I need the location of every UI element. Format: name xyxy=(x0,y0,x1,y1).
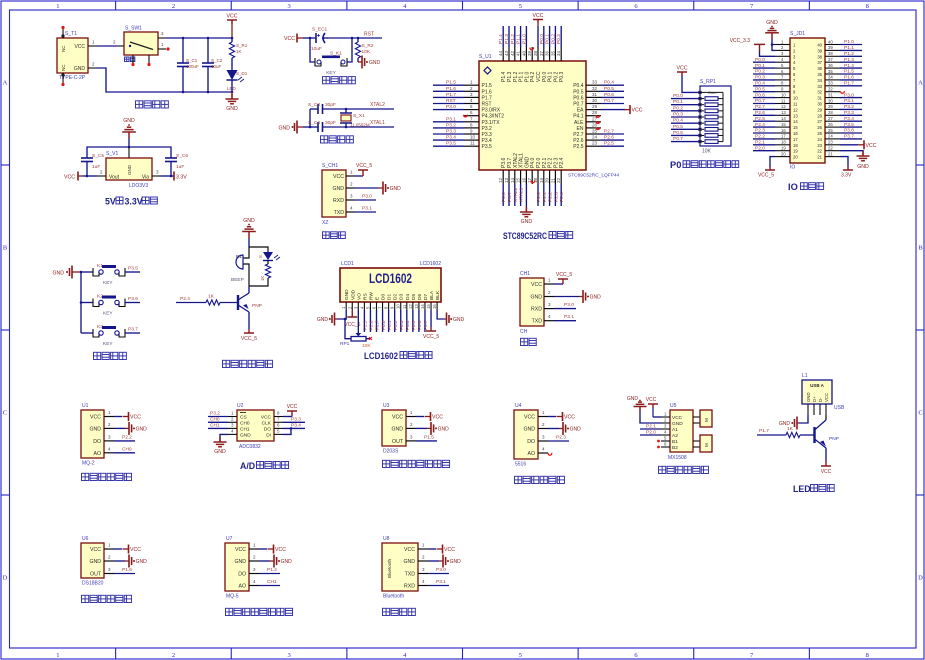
svg-text:P0.4: P0.4 xyxy=(604,80,614,86)
svg-text:GND: GND xyxy=(627,396,639,402)
svg-text:GND: GND xyxy=(234,559,246,565)
svg-text:1: 1 xyxy=(664,412,667,417)
svg-text:10uF: 10uF xyxy=(211,64,222,69)
svg-text:CH0: CH0 xyxy=(122,446,132,452)
svg-text:15: 15 xyxy=(426,304,431,309)
svg-text:P1.3: P1.3 xyxy=(844,57,854,63)
svg-text:D2: D2 xyxy=(393,294,399,300)
svg-text:30: 30 xyxy=(592,98,598,103)
svg-text:28: 28 xyxy=(592,110,598,115)
svg-text:38: 38 xyxy=(817,54,822,59)
svg-text:5: 5 xyxy=(781,63,784,68)
svg-text:P1.7: P1.7 xyxy=(844,81,854,87)
svg-text:21: 21 xyxy=(550,177,555,183)
svg-text:Via: Via xyxy=(142,175,149,181)
svg-text:33: 33 xyxy=(592,80,598,85)
svg-text:14: 14 xyxy=(510,177,515,183)
svg-text:LCD1602: LCD1602 xyxy=(420,261,441,267)
svg-text:6: 6 xyxy=(277,423,280,428)
svg-text:S_X1: S_X1 xyxy=(353,113,365,119)
svg-text:8: 8 xyxy=(384,306,389,309)
svg-text:P0.0: P0.0 xyxy=(673,93,683,99)
svg-text:VCC: VCC xyxy=(90,547,101,553)
svg-text:GND: GND xyxy=(123,118,135,124)
svg-text:2: 2 xyxy=(172,652,175,659)
svg-text:P0.4: P0.4 xyxy=(573,83,584,89)
svg-text:GND: GND xyxy=(521,219,533,225)
svg-text:P0.3: P0.3 xyxy=(673,112,683,118)
svg-text:A: A xyxy=(3,80,8,87)
svg-text:5V: 5V xyxy=(105,197,116,207)
svg-text:7: 7 xyxy=(378,306,383,309)
svg-text:10uF: 10uF xyxy=(311,46,322,52)
svg-text:OUT: OUT xyxy=(392,439,404,445)
svg-text:8: 8 xyxy=(866,652,869,659)
svg-text:D5: D5 xyxy=(411,294,417,300)
svg-text:P3.3: P3.3 xyxy=(482,132,493,138)
svg-text:BLA: BLA xyxy=(429,290,435,300)
svg-text:1: 1 xyxy=(253,543,256,548)
svg-text:4: 4 xyxy=(470,98,473,103)
svg-text:2: 2 xyxy=(664,418,667,423)
svg-text:U5: U5 xyxy=(670,403,677,409)
svg-text:16: 16 xyxy=(521,177,526,183)
svg-text:VO: VO xyxy=(356,293,362,300)
svg-text:1: 1 xyxy=(470,80,473,85)
svg-text:P3.5: P3.5 xyxy=(446,141,456,147)
svg-text:RXD: RXD xyxy=(404,584,415,590)
svg-text:P1.5: P1.5 xyxy=(424,434,434,440)
svg-text:P1.6: P1.6 xyxy=(446,86,456,92)
svg-text:P0.0: P0.0 xyxy=(381,320,386,330)
svg-text:P0.3: P0.3 xyxy=(399,320,404,330)
svg-text:28: 28 xyxy=(828,110,833,115)
svg-text:37: 37 xyxy=(817,60,822,65)
svg-text:RXD: RXD xyxy=(531,307,542,313)
svg-text:1K: 1K xyxy=(236,49,242,54)
svg-text:P3.6: P3.6 xyxy=(501,192,507,202)
svg-text:19: 19 xyxy=(793,149,798,154)
svg-text:GND: GND xyxy=(438,426,450,432)
svg-text:1: 1 xyxy=(548,278,551,283)
svg-text:P0.2: P0.2 xyxy=(755,69,765,75)
svg-text:12: 12 xyxy=(498,177,503,183)
svg-text:EA: EA xyxy=(577,108,584,114)
svg-text:P3.1/TX: P3.1/TX xyxy=(482,120,501,126)
svg-text:4: 4 xyxy=(253,579,256,584)
svg-text:DO: DO xyxy=(238,572,246,578)
svg-text:DO: DO xyxy=(527,439,535,445)
svg-text:4: 4 xyxy=(542,447,545,452)
svg-text:P2.2: P2.2 xyxy=(548,192,554,202)
svg-text:VCC: VCC xyxy=(404,547,415,553)
svg-text:30: 30 xyxy=(817,102,822,107)
svg-text:3: 3 xyxy=(353,306,358,309)
svg-text:8: 8 xyxy=(470,122,473,127)
svg-text:3: 3 xyxy=(542,435,545,440)
svg-text:VCC: VCC xyxy=(284,36,295,42)
svg-text:3: 3 xyxy=(410,434,413,439)
svg-text:1uF: 1uF xyxy=(176,164,184,170)
svg-text:P2.5: P2.5 xyxy=(755,116,765,122)
svg-text:VCC: VCC xyxy=(564,415,575,421)
svg-text:29: 29 xyxy=(828,104,833,109)
svg-text:P2.7: P2.7 xyxy=(604,129,614,135)
svg-text:A: A xyxy=(918,80,923,87)
svg-text:1: 1 xyxy=(542,410,545,415)
svg-text:VCC: VCC xyxy=(677,66,688,72)
svg-text:P2.4: P2.4 xyxy=(180,296,190,302)
svg-text:STC89C52RC: STC89C52RC xyxy=(503,231,547,241)
svg-text:19: 19 xyxy=(539,177,544,183)
svg-text:KEY: KEY xyxy=(326,70,336,76)
svg-text:P2.7: P2.7 xyxy=(573,132,584,138)
svg-text:P2.7: P2.7 xyxy=(755,104,765,110)
svg-text:CLK: CLK xyxy=(262,420,272,426)
svg-text:5516: 5516 xyxy=(515,462,526,468)
svg-text:P1.1: P1.1 xyxy=(516,34,522,44)
svg-text:39: 39 xyxy=(828,45,833,50)
svg-text:9: 9 xyxy=(390,306,395,309)
svg-text:22: 22 xyxy=(828,146,833,151)
svg-text:GND: GND xyxy=(74,66,86,72)
svg-text:P2.3: P2.3 xyxy=(755,128,765,134)
svg-text:25: 25 xyxy=(828,128,833,133)
svg-text:LED: LED xyxy=(793,484,811,494)
svg-text:VCC: VCC xyxy=(90,415,101,421)
svg-text:8: 8 xyxy=(781,81,784,86)
svg-text:P3.0: P3.0 xyxy=(564,302,574,308)
svg-text:3: 3 xyxy=(781,51,784,56)
svg-text:VCC_5: VCC_5 xyxy=(423,334,439,340)
svg-text:STC89C52RC_LQFP44: STC89C52RC_LQFP44 xyxy=(568,173,620,179)
svg-text:12: 12 xyxy=(408,304,413,309)
svg-text:35: 35 xyxy=(828,69,833,74)
svg-text:GND: GND xyxy=(89,559,101,565)
svg-text:P3.6: P3.6 xyxy=(128,296,138,302)
svg-text:P3.2: P3.2 xyxy=(446,122,456,128)
svg-text:5: 5 xyxy=(365,306,370,309)
svg-text:3: 3 xyxy=(287,3,290,10)
svg-text:39: 39 xyxy=(817,48,822,53)
svg-text:40: 40 xyxy=(817,43,822,48)
svg-text:20: 20 xyxy=(545,177,550,183)
svg-text:1: 1 xyxy=(422,543,425,548)
svg-text:CH1: CH1 xyxy=(240,426,250,432)
svg-text:P1.1: P1.1 xyxy=(844,45,854,51)
svg-text:7: 7 xyxy=(277,417,280,422)
svg-text:P3.6: P3.6 xyxy=(844,128,854,134)
svg-text:2: 2 xyxy=(548,290,551,295)
svg-text:GND: GND xyxy=(391,426,403,432)
svg-text:34: 34 xyxy=(817,78,822,83)
svg-text:13: 13 xyxy=(504,177,509,183)
svg-text:U2: U2 xyxy=(237,403,244,409)
svg-text:2: 2 xyxy=(108,555,111,560)
svg-text:PNP: PNP xyxy=(829,436,839,442)
svg-text:P1.7: P1.7 xyxy=(482,95,493,101)
svg-text:S_D1: S_D1 xyxy=(236,71,248,76)
svg-text:P1.4: P1.4 xyxy=(498,34,504,44)
svg-text:M: M xyxy=(704,418,709,422)
svg-text:3.3V: 3.3V xyxy=(125,197,143,207)
svg-text:CH1: CH1 xyxy=(520,271,530,277)
svg-text:D+: D+ xyxy=(812,396,817,402)
svg-text:1: 1 xyxy=(350,170,353,175)
svg-text:9: 9 xyxy=(470,129,473,134)
svg-text:5: 5 xyxy=(519,3,522,10)
svg-text:P0.6: P0.6 xyxy=(755,92,765,98)
svg-text:VCC: VCC xyxy=(261,415,272,421)
svg-text:2: 2 xyxy=(410,422,413,427)
svg-text:A1: A1 xyxy=(672,427,678,433)
svg-text:D-: D- xyxy=(818,397,823,402)
svg-text:P3.1: P3.1 xyxy=(436,579,446,585)
svg-text:RST: RST xyxy=(482,102,492,108)
svg-text:18: 18 xyxy=(781,140,786,145)
svg-text:1K: 1K xyxy=(208,294,215,300)
svg-text:S_U1: S_U1 xyxy=(479,54,492,60)
svg-text:44: 44 xyxy=(498,50,503,56)
svg-text:P3.0: P3.0 xyxy=(362,194,372,200)
svg-text:XTAL1: XTAL1 xyxy=(370,120,385,126)
svg-text:P1.0: P1.0 xyxy=(521,34,527,44)
svg-text:P3.0/RX: P3.0/RX xyxy=(482,108,501,114)
svg-text:30pF: 30pF xyxy=(325,120,336,126)
svg-text:10: 10 xyxy=(396,304,401,309)
svg-text:A/D: A/D xyxy=(240,461,255,471)
svg-text:1: 1 xyxy=(56,3,59,10)
svg-text:P2.5: P2.5 xyxy=(604,141,614,147)
svg-text:P0.6: P0.6 xyxy=(673,130,683,136)
svg-text:P2.5: P2.5 xyxy=(573,144,584,150)
svg-text:LCD1602: LCD1602 xyxy=(369,271,412,286)
svg-text:VCC: VCC xyxy=(824,393,829,402)
svg-text:AO: AO xyxy=(239,584,247,590)
svg-text:VCC: VCC xyxy=(64,175,75,181)
svg-text:VCC: VCC xyxy=(287,404,298,410)
svg-text:D1: D1 xyxy=(387,294,393,300)
svg-text:P3.4: P3.4 xyxy=(482,138,493,144)
svg-text:P0.1: P0.1 xyxy=(673,99,683,105)
svg-text:10: 10 xyxy=(470,135,476,140)
svg-text:36: 36 xyxy=(545,50,550,56)
svg-text:9: 9 xyxy=(781,87,784,92)
svg-text:P4.1: P4.1 xyxy=(573,114,584,120)
svg-text:6: 6 xyxy=(664,442,667,447)
svg-text:P3.3: P3.3 xyxy=(291,417,301,423)
svg-text:2: 2 xyxy=(350,182,353,187)
svg-text:31: 31 xyxy=(828,92,833,97)
svg-text:DO: DO xyxy=(264,426,271,432)
svg-text:P2.6: P2.6 xyxy=(369,320,374,330)
svg-text:32: 32 xyxy=(592,86,598,91)
svg-text:6: 6 xyxy=(781,69,784,74)
svg-text:AO: AO xyxy=(528,451,536,457)
svg-text:D203S: D203S xyxy=(383,449,399,455)
svg-text:GND: GND xyxy=(278,126,290,132)
svg-text:36: 36 xyxy=(817,66,822,71)
svg-text:U1: U1 xyxy=(82,403,89,409)
svg-text:S_R1: S_R1 xyxy=(236,43,248,48)
svg-text:VCC: VCC xyxy=(646,397,657,403)
svg-text:1K: 1K xyxy=(787,426,794,432)
svg-text:17: 17 xyxy=(793,137,798,142)
svg-text:3: 3 xyxy=(470,92,473,97)
svg-text:RW: RW xyxy=(368,292,374,300)
svg-text:20: 20 xyxy=(781,151,786,156)
svg-text:P2.4: P2.4 xyxy=(755,122,765,128)
svg-text:3.3V: 3.3V xyxy=(841,173,852,179)
svg-text:3: 3 xyxy=(108,567,111,572)
svg-text:38: 38 xyxy=(533,50,538,56)
svg-text:P0.5: P0.5 xyxy=(573,89,584,95)
svg-text:P1.5: P1.5 xyxy=(446,80,456,86)
svg-text:P0.1: P0.1 xyxy=(545,34,551,44)
svg-text:IO: IO xyxy=(790,165,795,171)
svg-text:6: 6 xyxy=(634,652,638,659)
svg-text:S_SW1: S_SW1 xyxy=(125,26,142,32)
svg-text:XTAL1: XTAL1 xyxy=(519,187,525,202)
svg-text:GND: GND xyxy=(806,392,811,402)
svg-text:D7: D7 xyxy=(423,294,429,300)
svg-text:P2.0: P2.0 xyxy=(646,430,656,436)
svg-text:VCC: VCC xyxy=(275,547,286,553)
svg-text:VCC: VCC xyxy=(531,282,542,288)
svg-text:U7: U7 xyxy=(226,536,233,542)
svg-text:35: 35 xyxy=(550,50,555,56)
svg-text:1: 1 xyxy=(92,40,95,45)
svg-text:10K: 10K xyxy=(702,149,712,155)
svg-text:P3.1: P3.1 xyxy=(844,98,854,104)
svg-text:P0.2: P0.2 xyxy=(550,34,556,44)
svg-text:1: 1 xyxy=(341,306,346,309)
svg-text:A2: A2 xyxy=(672,433,678,439)
svg-text:34: 34 xyxy=(556,50,561,56)
svg-text:P1.2: P1.2 xyxy=(844,51,854,57)
svg-text:P1.2: P1.2 xyxy=(267,567,277,573)
svg-text:P1.6: P1.6 xyxy=(844,75,854,81)
svg-text:VCC_5: VCC_5 xyxy=(356,163,372,169)
svg-text:P0.4: P0.4 xyxy=(405,320,410,330)
svg-text:P0.1: P0.1 xyxy=(387,320,392,330)
svg-text:3: 3 xyxy=(422,567,425,572)
svg-text:CH1: CH1 xyxy=(210,423,220,429)
svg-text:11: 11 xyxy=(402,304,407,309)
svg-text:Bluetooth: Bluetooth xyxy=(383,594,404,600)
svg-text:21: 21 xyxy=(817,155,822,160)
svg-text:CH0: CH0 xyxy=(240,420,250,426)
svg-text:VCC: VCC xyxy=(533,13,544,19)
svg-text:4: 4 xyxy=(781,57,784,62)
svg-text:P0.2: P0.2 xyxy=(673,105,683,111)
svg-text:U3: U3 xyxy=(383,403,390,409)
svg-text:OUT: OUT xyxy=(90,572,102,578)
svg-text:12: 12 xyxy=(793,107,798,112)
svg-text:P2.6: P2.6 xyxy=(573,138,584,144)
svg-text:Com: Com xyxy=(708,90,717,95)
svg-text:P0.7: P0.7 xyxy=(673,136,683,142)
svg-text:D: D xyxy=(918,575,923,582)
svg-text:P2.1: P2.1 xyxy=(542,192,548,202)
svg-text:GND: GND xyxy=(390,186,402,192)
svg-text:32: 32 xyxy=(828,87,833,92)
svg-text:P0.6: P0.6 xyxy=(573,95,584,101)
svg-text:2: 2 xyxy=(347,306,352,309)
svg-text:23: 23 xyxy=(828,140,833,145)
svg-text:P0.0: P0.0 xyxy=(539,34,545,44)
svg-text:VCC: VCC xyxy=(821,469,832,475)
svg-text:D6: D6 xyxy=(417,294,423,300)
svg-text:24: 24 xyxy=(817,137,822,142)
svg-text:1: 1 xyxy=(108,410,111,415)
svg-text:P0.4: P0.4 xyxy=(755,81,765,87)
svg-text:2: 2 xyxy=(781,45,784,50)
svg-text:Vout: Vout xyxy=(109,175,120,181)
svg-text:LCD1: LCD1 xyxy=(341,261,354,267)
svg-text:MQ-5: MQ-5 xyxy=(226,594,239,600)
svg-text:C: C xyxy=(3,410,7,417)
svg-text:P2.1: P2.1 xyxy=(755,140,765,146)
svg-text:D: D xyxy=(3,575,8,582)
svg-text:VCC: VCC xyxy=(130,547,141,553)
svg-text:16: 16 xyxy=(781,128,786,133)
svg-text:P2.6: P2.6 xyxy=(755,110,765,116)
svg-text:GND: GND xyxy=(523,427,535,433)
svg-text:VCC: VCC xyxy=(632,108,643,114)
svg-text:4: 4 xyxy=(403,652,407,659)
svg-text:14: 14 xyxy=(420,304,425,309)
svg-text:TXD: TXD xyxy=(532,319,543,325)
svg-text:5: 5 xyxy=(277,429,280,434)
svg-text:GND: GND xyxy=(89,426,101,432)
svg-text:S: S xyxy=(258,255,263,258)
svg-text:30pF: 30pF xyxy=(325,102,336,108)
svg-text:P0.3: P0.3 xyxy=(559,71,565,82)
svg-text:GND: GND xyxy=(214,449,226,455)
svg-text:26: 26 xyxy=(817,125,822,130)
svg-text:P0.5: P0.5 xyxy=(604,86,614,92)
svg-text:EN: EN xyxy=(577,126,584,132)
svg-text:IO: IO xyxy=(788,182,798,192)
svg-text:1K: 1K xyxy=(260,276,265,281)
svg-text:P1.7: P1.7 xyxy=(446,92,456,98)
svg-text:XTAL2: XTAL2 xyxy=(513,187,519,202)
svg-text:13: 13 xyxy=(793,113,798,118)
svg-text:GND: GND xyxy=(369,60,381,66)
svg-text:29: 29 xyxy=(592,104,598,109)
svg-text:GND: GND xyxy=(226,106,238,112)
svg-text:VCC: VCC xyxy=(227,14,238,20)
svg-text:USB: USB xyxy=(834,405,845,411)
svg-text:37: 37 xyxy=(828,57,833,62)
svg-text:D0: D0 xyxy=(381,294,387,300)
svg-text:KEY: KEY xyxy=(103,311,113,317)
svg-text:P2.0: P2.0 xyxy=(755,145,765,151)
svg-text:19: 19 xyxy=(781,146,786,151)
svg-text:P0.6: P0.6 xyxy=(417,320,422,330)
svg-text:P1.5: P1.5 xyxy=(844,69,854,75)
svg-text:D4: D4 xyxy=(405,294,411,300)
svg-text:40: 40 xyxy=(828,39,833,44)
svg-text:6: 6 xyxy=(470,110,473,115)
svg-text:P3.7: P3.7 xyxy=(844,134,854,140)
svg-text:11: 11 xyxy=(470,141,475,146)
svg-text:1: 1 xyxy=(56,652,59,659)
svg-text:2: 2 xyxy=(422,555,425,560)
svg-text:13: 13 xyxy=(781,110,786,115)
svg-text:CS: CS xyxy=(240,415,247,421)
